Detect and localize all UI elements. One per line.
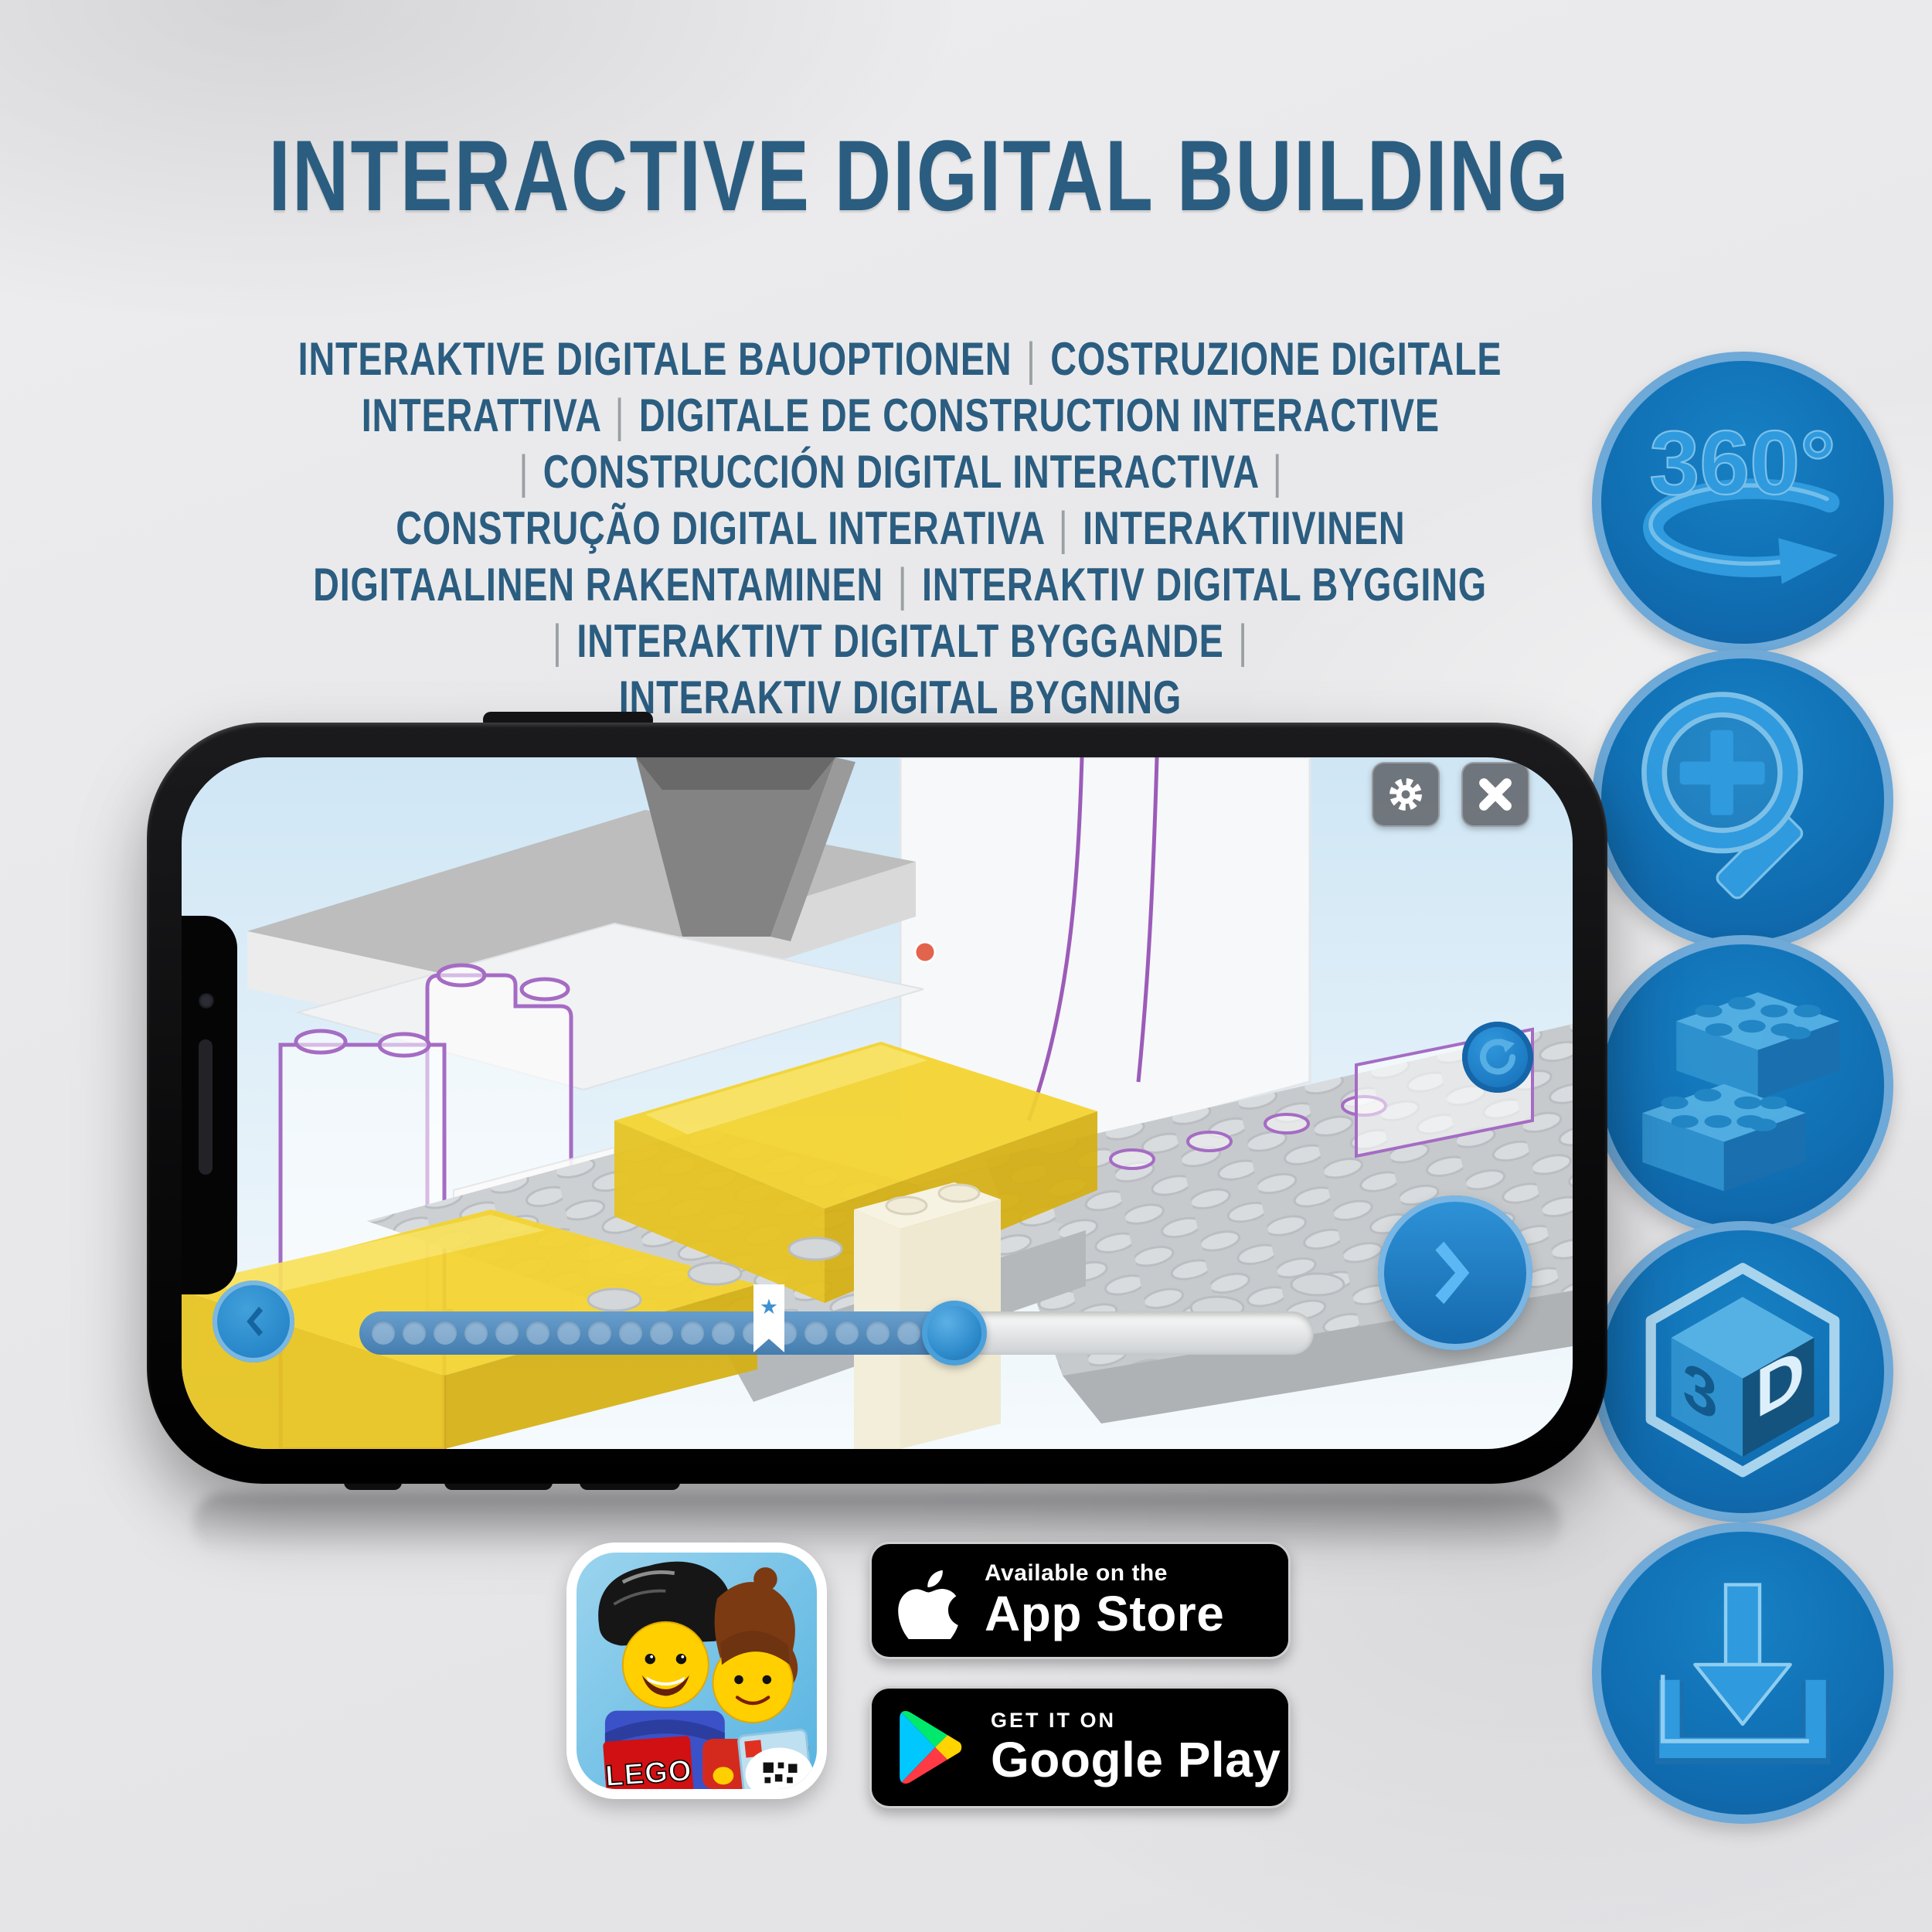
progress-dot: [495, 1321, 519, 1345]
pipe-separator: |: [611, 389, 628, 441]
subtitle-line: INTERAKTIVE DIGITALE BAUOPTIONEN | COSTR…: [0, 331, 1801, 387]
progress-dot: [650, 1321, 673, 1345]
app-screen: ★: [182, 757, 1573, 1449]
pipe-separator: |: [1055, 502, 1072, 554]
chevron-right-icon: [1413, 1230, 1498, 1315]
close-icon: [1475, 774, 1516, 815]
progress-dot: [588, 1321, 611, 1345]
subtitle-line: | INTERAKTIVT DIGITALT BYGGANDE |: [0, 613, 1801, 669]
gear-icon: [1385, 774, 1427, 815]
app-store-tagline: Available on the: [985, 1561, 1224, 1585]
google-play-logo-icon: [896, 1708, 968, 1787]
subtitle-line: | CONSTRUCCIÓN DIGITAL INTERACTIVA |: [0, 444, 1801, 500]
progress-dot: [557, 1321, 580, 1345]
google-play-tagline: GET IT ON: [991, 1709, 1281, 1731]
previous-step-button[interactable]: [213, 1281, 294, 1362]
app-store-name: App Store: [985, 1588, 1224, 1640]
earpiece-speaker: [199, 1039, 213, 1175]
progress-dot: [835, 1321, 859, 1345]
pipe-separator: |: [549, 615, 566, 667]
build-progress-bar[interactable]: [359, 1311, 1314, 1355]
progress-dot: [403, 1321, 426, 1345]
3d-view-badge: 3 D: [1592, 1221, 1893, 1522]
progress-dot: [804, 1321, 828, 1345]
progress-dot: [372, 1321, 395, 1345]
progress-dot: [866, 1321, 889, 1345]
subtitle-line: INTERAKTIV DIGITAL BYGNING: [0, 669, 1801, 726]
pipe-separator: |: [1023, 333, 1040, 385]
subtitle-line: CONSTRUÇÃO DIGITAL INTERATIVA | INTERAKT…: [0, 500, 1801, 556]
rotate-icon: [1475, 1034, 1521, 1080]
progress-dot: [434, 1321, 457, 1345]
progress-fill: [359, 1311, 981, 1355]
download-icon: [1615, 1546, 1870, 1801]
lego-bricks-icon: [1615, 958, 1870, 1213]
chevron-left-icon: [233, 1301, 274, 1342]
360-rotation-badge: 360°: [1592, 352, 1893, 653]
next-step-button[interactable]: [1378, 1196, 1532, 1350]
progress-dot: [712, 1321, 735, 1345]
pipe-separator: |: [515, 446, 532, 498]
rotate-view-button[interactable]: [1462, 1022, 1533, 1093]
progress-dot: [619, 1321, 642, 1345]
lego-app-artwork: LEGO: [577, 1553, 817, 1789]
3d-cube-icon: 3 D: [1615, 1244, 1870, 1499]
subtitle-line: INTERATTIVA | DIGITALE DE CONSTRUCTION I…: [0, 387, 1801, 444]
progress-dot: [464, 1321, 488, 1345]
google-play-badge[interactable]: GET IT ON Google Play: [869, 1686, 1291, 1808]
download-badge: [1592, 1522, 1893, 1824]
close-button[interactable]: [1461, 762, 1529, 827]
progress-dot: [897, 1321, 920, 1345]
lego-app-icon[interactable]: LEGO: [566, 1543, 827, 1799]
pipe-separator: |: [1234, 615, 1251, 667]
subtitle-line: DIGITAALINEN RAKENTAMINEN | INTERAKTIV D…: [0, 556, 1801, 613]
app-store-badge[interactable]: Available on the App Store: [869, 1542, 1291, 1659]
subtitle-block: INTERAKTIVE DIGITALE BAUOPTIONEN | COSTR…: [0, 331, 1801, 726]
settings-button[interactable]: [1372, 762, 1440, 827]
svg-text:360°: 360°: [1649, 412, 1835, 513]
page-title: INTERACTIVE DIGITAL BUILDING: [0, 117, 1839, 233]
zoom-in-icon: [1615, 672, 1870, 927]
zoom-feature-badge: [1592, 649, 1893, 951]
apple-logo-icon: [896, 1562, 961, 1639]
svg-text:LEGO: LEGO: [604, 1753, 693, 1789]
google-play-name: Google Play: [991, 1734, 1281, 1786]
progress-dot: [526, 1321, 549, 1345]
front-camera: [199, 993, 214, 1009]
progress-slider-handle[interactable]: [922, 1301, 987, 1366]
phone-mockup: ★: [147, 723, 1607, 1484]
progress-dot: [681, 1321, 704, 1345]
pipe-separator: |: [894, 559, 911, 611]
pipe-separator: |: [1268, 446, 1285, 498]
360-degrees-icon: 360°: [1615, 375, 1870, 630]
poster: INTERACTIVE DIGITAL BUILDING INTERAKTIVE…: [0, 0, 1932, 1932]
phone-notch: [182, 916, 237, 1294]
brick-options-badge: [1592, 935, 1893, 1236]
